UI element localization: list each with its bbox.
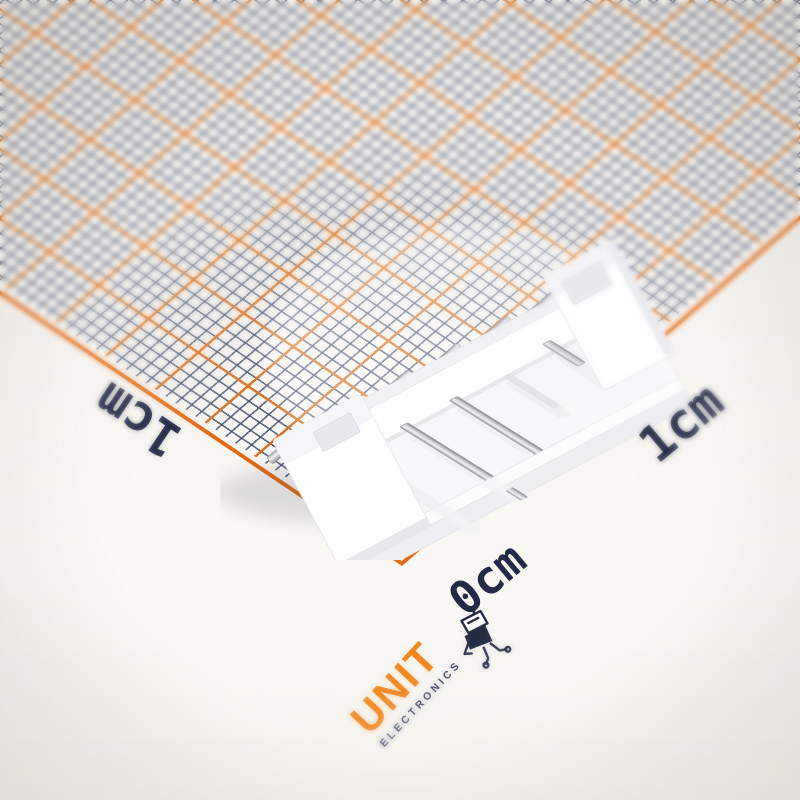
product-photo: 1cm 0cm 1cm UNIT ELECTRONICS: [0, 0, 800, 800]
connector-photo: [220, 140, 700, 560]
